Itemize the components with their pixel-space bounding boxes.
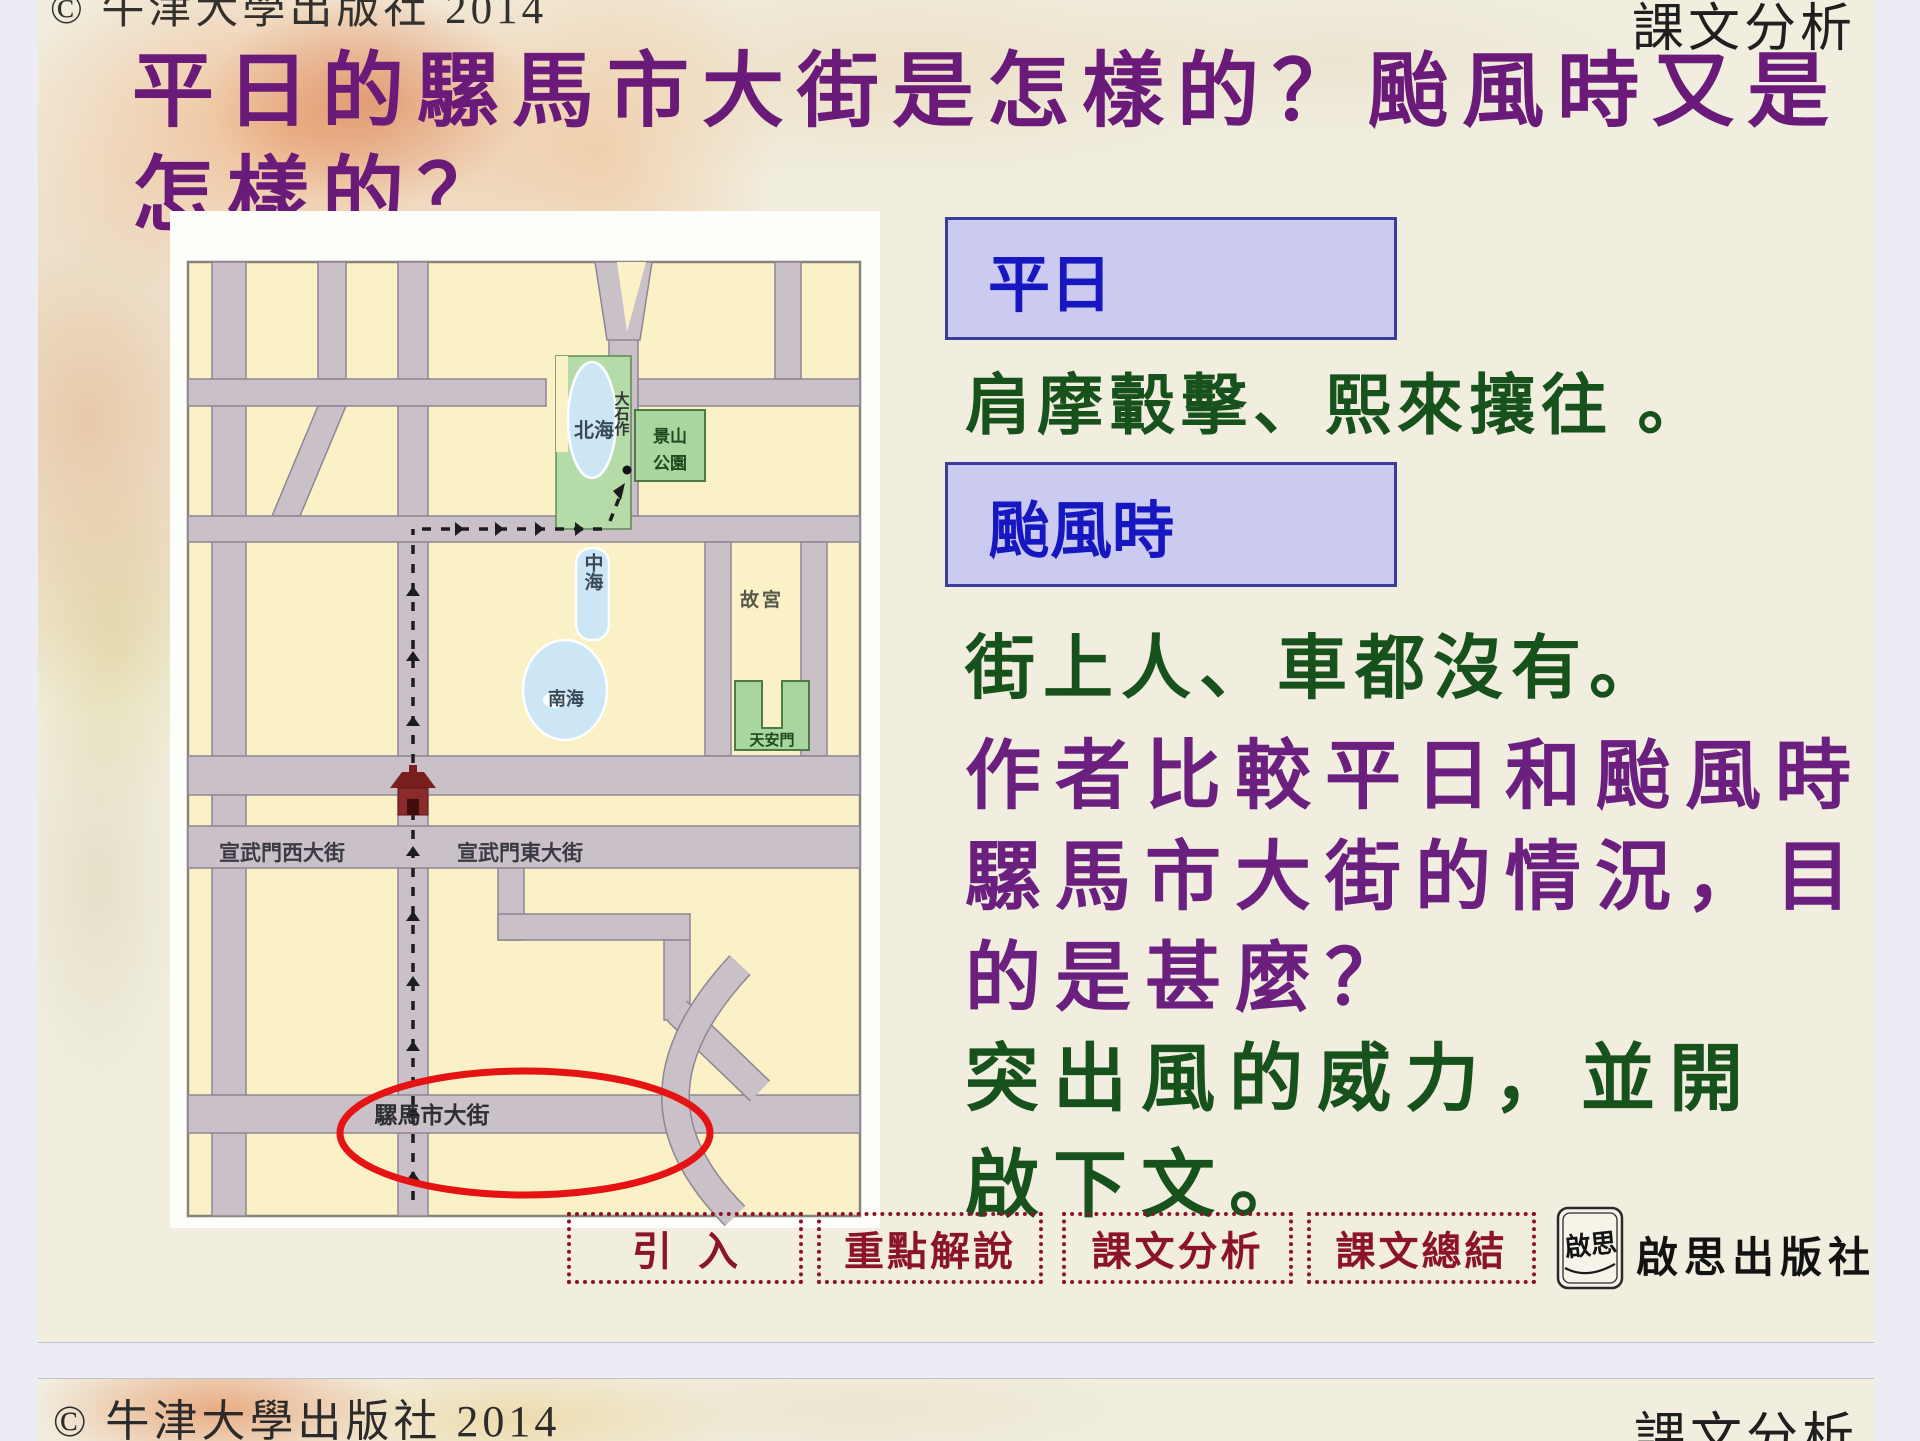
label-dashizuo: 大石作 [613,390,631,437]
nav-button-key-points[interactable]: 重點解說 [817,1212,1043,1284]
answer-line1: 突出風的威力，並開 [965,1026,1757,1132]
route-destination-dot [623,466,632,475]
nav-button-key-points-label: 重點解說 [844,1219,1016,1277]
label-luomashi: 騾馬市大街 [375,1102,490,1128]
copyright-next-slide: © 牛津大學出版社 2014 [53,1385,560,1441]
viewer-stage: © 牛津大學出版社 2014 課文分析 平日的騾馬市大街是怎樣的？颱風時又是 怎… [0,0,1920,1440]
question-line1: 作者比較平日和颱風時 [965,726,1865,827]
nav-button-text-analysis-label: 課文分析 [1092,1219,1264,1277]
label-xuanwumen-west: 宣武門西大街 [219,841,345,865]
map-illustration: 北海 中海 南海 大石作 景山 公園 故宮 天安門 宣武門西大街 宣武門東大街 … [170,211,880,1228]
label-gugong: 故宮 [740,588,784,611]
label-xuanwumen-east: 宣武門東大街 [457,841,583,865]
question-line2: 騾馬市大街的情況，目 [965,827,1865,928]
nav-button-intro-label: 引入 [632,1219,764,1277]
copyright-top-clipped: © 牛津大學出版社 2014 [50,0,547,36]
nav-button-text-summary[interactable]: 課文總結 [1307,1212,1536,1284]
answer-text: 突出風的威力，並開 啟下文。 [965,1026,1757,1238]
tag-box-typhoon: 颱風時 [945,462,1397,587]
label-beihai: 北海 [574,418,614,442]
label-zhonghai: 中海 [582,552,604,591]
slide-next-partial: © 牛津大學出版社 2014 課文分析 [38,1378,1874,1441]
tag-box-typhoon-label: 颱風時 [988,480,1174,570]
tag-box-weekday: 平日 [945,217,1397,340]
question-text: 作者比較平日和颱風時 騾馬市大街的情況，目 的是甚麼？ [965,726,1865,1029]
publisher-logo-icon: 啟思 [1555,1204,1625,1292]
publisher-name: 啟思出版社 [1636,1224,1874,1285]
section-header-next-slide: 課文分析 [1634,1395,1858,1441]
slide-current: © 牛津大學出版社 2014 課文分析 平日的騾馬市大街是怎樣的？颱風時又是 怎… [38,0,1874,1343]
beijing-map-panel: 北海 中海 南海 大石作 景山 公園 故宮 天安門 宣武門西大街 宣武門東大街 … [170,211,880,1228]
publisher-logo-text: 啟思 [1563,1227,1618,1262]
label-jingshan-line1: 景山 [653,427,687,446]
typhoon-description: 街上人、車都沒有。 [965,612,1667,713]
weekday-description: 肩摩轂擊、熙來攘往 。 [965,352,1709,448]
nav-button-text-summary-label: 課文總結 [1336,1219,1508,1277]
nav-button-intro[interactable]: 引入 [567,1212,803,1284]
question-line3: 的是甚麼？ [965,928,1865,1029]
label-nanhai: 南海 [548,688,584,709]
tag-box-weekday-label: 平日 [988,234,1112,324]
nav-button-text-analysis[interactable]: 課文分析 [1062,1212,1293,1284]
label-jingshan-line2: 公園 [653,454,687,473]
page-title-line1: 平日的騾馬市大街是怎樣的？颱風時又是 [132,40,1842,144]
label-tiananmen: 天安門 [749,731,794,749]
street-luomashi [188,1095,860,1133]
